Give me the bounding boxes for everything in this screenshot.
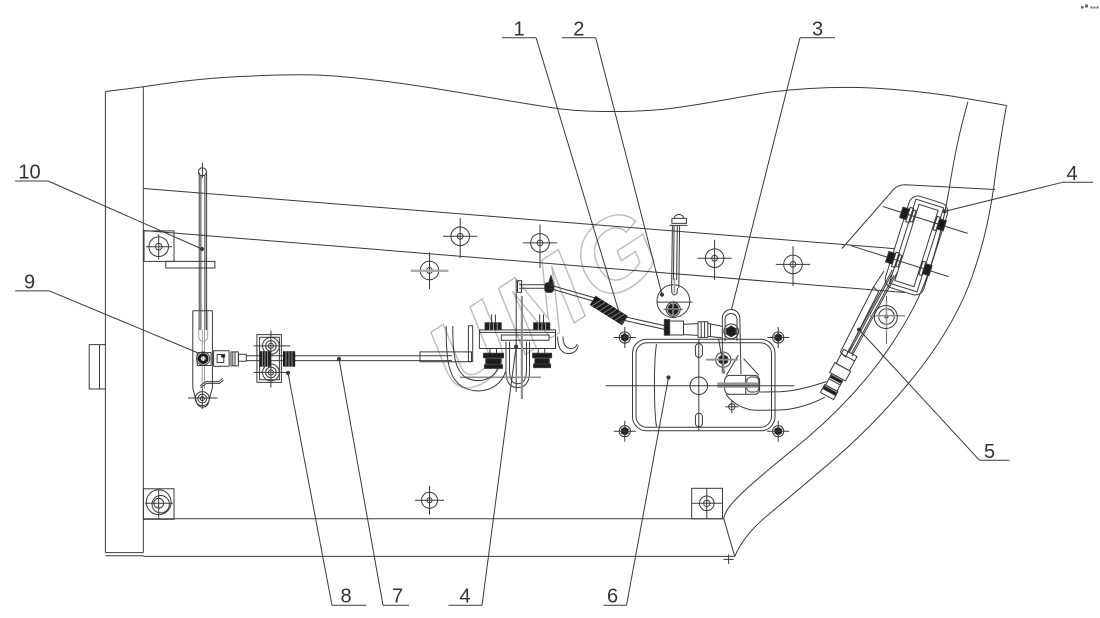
svg-text:9: 9 <box>24 272 35 294</box>
svg-text:7: 7 <box>392 586 403 608</box>
svg-text:6: 6 <box>607 586 618 608</box>
svg-text:4: 4 <box>459 586 470 608</box>
svg-text:4: 4 <box>1066 163 1077 185</box>
svg-text:1: 1 <box>513 19 524 41</box>
svg-text:8: 8 <box>340 586 351 608</box>
svg-text:10: 10 <box>18 162 40 184</box>
svg-text:3: 3 <box>812 19 823 41</box>
svg-text:5: 5 <box>984 441 995 463</box>
svg-text:2: 2 <box>573 19 584 41</box>
